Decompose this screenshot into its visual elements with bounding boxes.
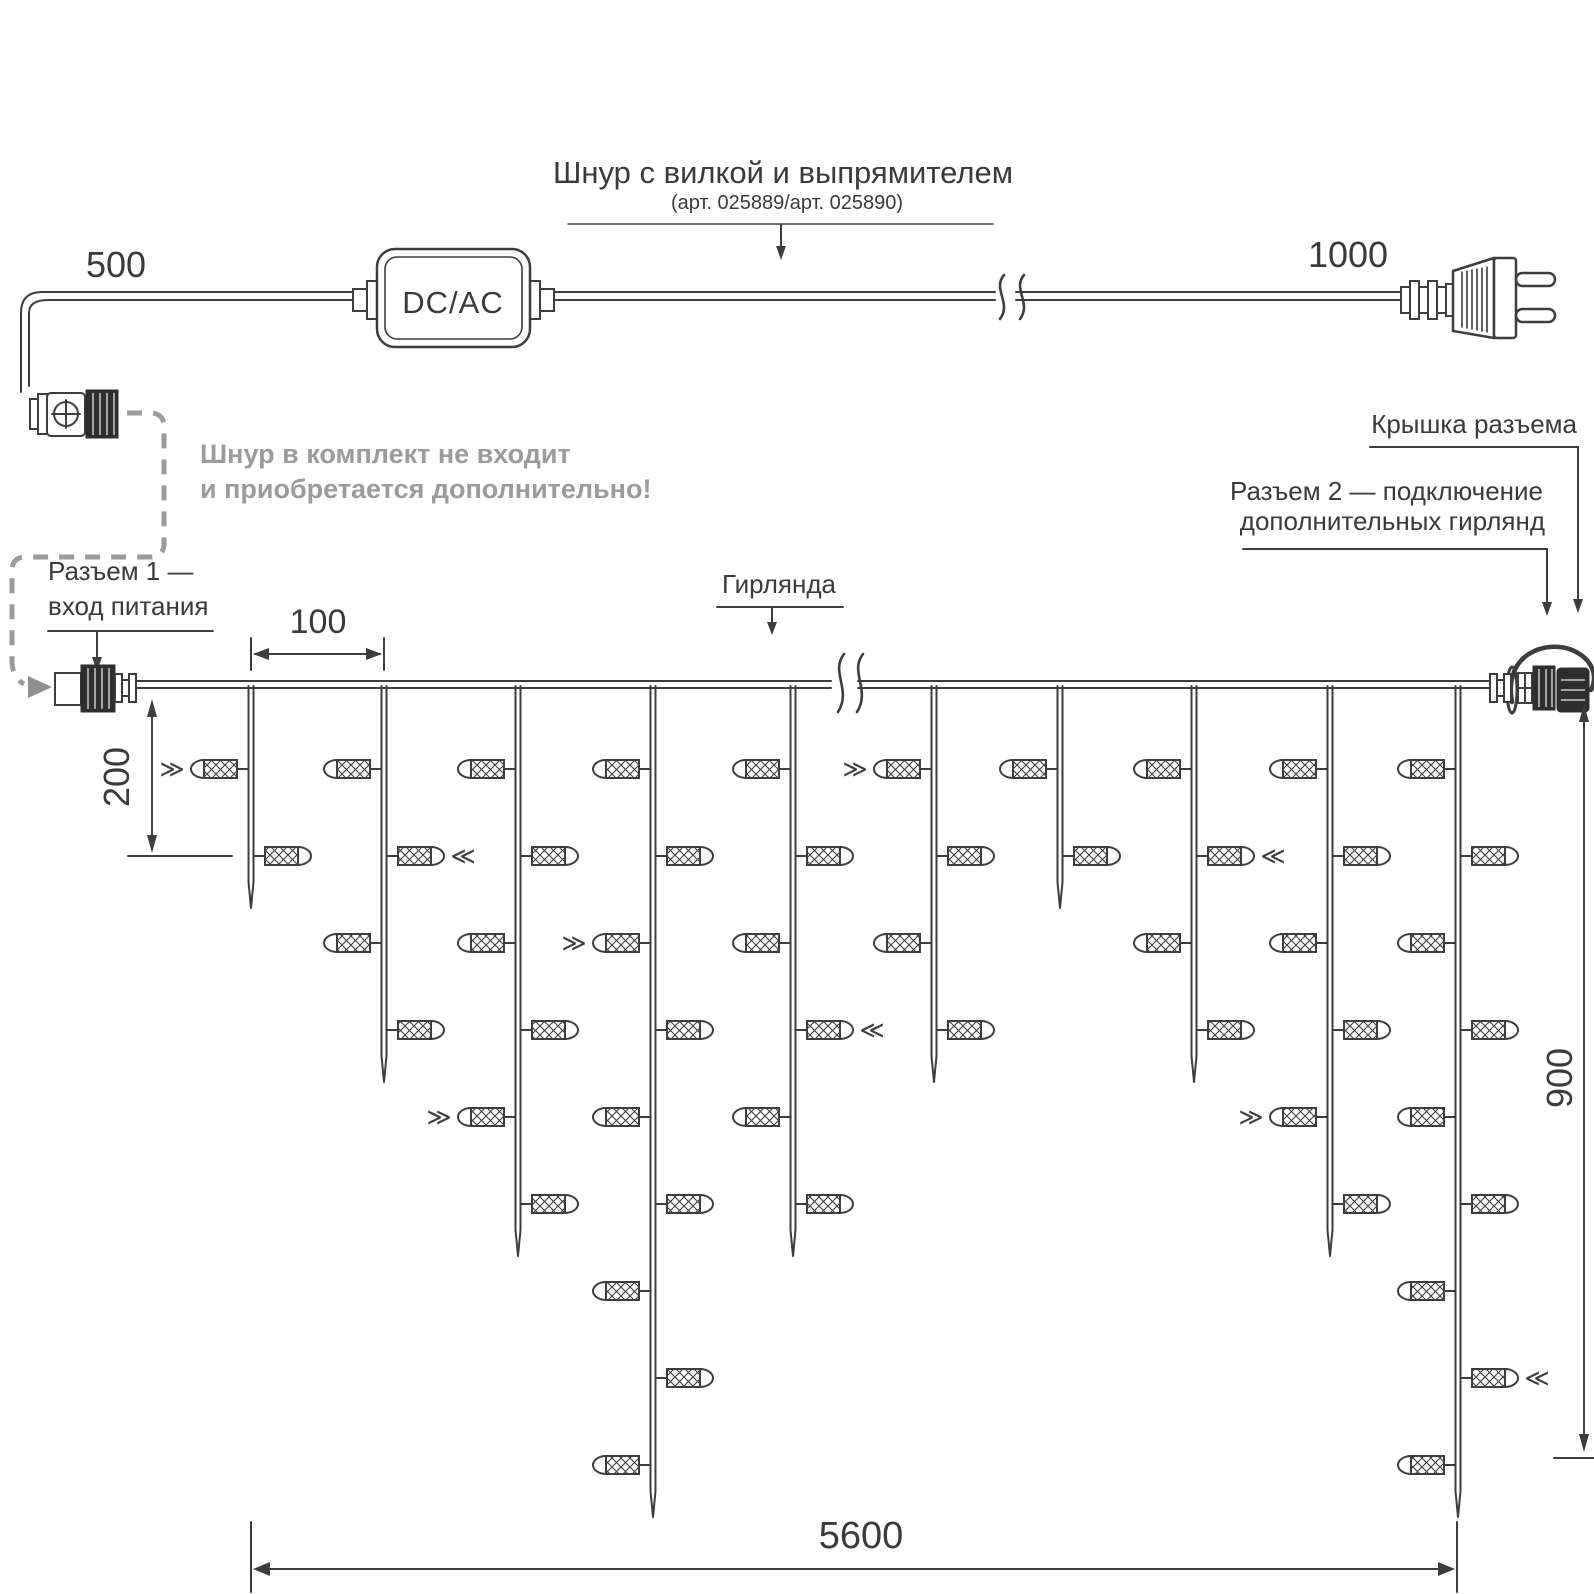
led-bulb-body — [1411, 1108, 1444, 1126]
led-bulb-body — [667, 1195, 700, 1213]
led-bulb-body — [887, 934, 920, 952]
led-bulb-dome — [1270, 760, 1283, 778]
plug-rib — [1410, 281, 1419, 319]
plug-rib — [1428, 281, 1437, 319]
connector-ring — [1504, 674, 1511, 702]
led-bulb-dome — [458, 934, 471, 952]
dim-1000-label: 1000 — [1308, 234, 1388, 275]
led-bulb-dome — [1398, 1456, 1411, 1474]
box-right-stub — [530, 281, 540, 319]
right-arrow-icon — [366, 648, 382, 660]
light-rays-icon: ≫ — [159, 755, 184, 783]
garland-main-wire — [136, 654, 1490, 712]
led-bulb-body — [606, 1108, 639, 1126]
led-bulb-dome — [1505, 1369, 1518, 1387]
led-bulb-dome — [874, 934, 887, 952]
dim-200-label: 200 — [96, 747, 137, 807]
cap-label: Крышка разъема — [1371, 409, 1577, 439]
connector2-callout: Разъем 2 — подключение дополнительных ги… — [1230, 476, 1552, 616]
led-bulb-dome — [565, 1021, 578, 1039]
plug-body — [1453, 258, 1494, 338]
led-bulb-body — [1283, 760, 1316, 778]
icicle-drop-wire — [516, 686, 521, 1256]
diagram-svg: Шнур с вилкой и выпрямителем (арт. 02588… — [0, 0, 1594, 1594]
led-bulb-body — [398, 1021, 431, 1039]
led-bulb-dome — [840, 847, 853, 865]
plug-prong — [1516, 309, 1555, 322]
led-bulb-body — [1147, 934, 1180, 952]
led-bulb-dome — [700, 1195, 713, 1213]
led-bulb-body — [1147, 760, 1180, 778]
garland-callout: Гирлянда — [717, 569, 843, 635]
connector2-line1: Разъем 2 — подключение — [1230, 476, 1543, 506]
led-bulb-dome — [1107, 847, 1120, 865]
connector1-line1: Разъем 1 — — [48, 556, 194, 586]
light-rays-icon: ≪ — [1260, 842, 1285, 870]
led-bulb-dome — [191, 760, 204, 778]
led-bulb-body — [1411, 1456, 1444, 1474]
break-squiggle-icon — [1020, 275, 1024, 319]
power-cord-right — [554, 275, 1401, 319]
led-bulb-dome — [1505, 847, 1518, 865]
led-bulb-body — [1472, 1195, 1505, 1213]
led-bulb-body — [1208, 847, 1241, 865]
icicle-drop-wire — [791, 686, 796, 1256]
led-bulb-body — [667, 1369, 700, 1387]
led-bulb-dome — [593, 934, 606, 952]
connector-ring — [1490, 674, 1497, 702]
break-squiggle-icon — [838, 654, 844, 712]
led-bulb-body — [398, 847, 431, 865]
led-bulb-dome — [874, 760, 887, 778]
led-bulb-dome — [1270, 934, 1283, 952]
connector-ring — [122, 680, 129, 696]
dim-100-label: 100 — [290, 603, 347, 641]
gray-arrow-icon — [28, 676, 52, 698]
led-bulb-dome — [593, 760, 606, 778]
icicle-drop-wire — [382, 686, 387, 1082]
light-rays-icon: ≪ — [1524, 1364, 1549, 1392]
icicle-drop-wire — [1328, 686, 1333, 1256]
led-bulb-dome — [565, 847, 578, 865]
led-bulb-dome — [840, 1195, 853, 1213]
break-squiggle-icon — [1000, 275, 1004, 319]
led-bulb-dome — [298, 847, 311, 865]
led-bulb-dome — [593, 1108, 606, 1126]
mains-plug — [1401, 258, 1555, 338]
dim-900-label: 900 — [1539, 1048, 1580, 1108]
led-bulb-body — [807, 1021, 840, 1039]
led-bulb-body — [807, 1195, 840, 1213]
optional-cord-dashed-path — [12, 413, 164, 684]
led-bulb-body — [337, 934, 370, 952]
led-bulb-body — [471, 1108, 504, 1126]
led-bulb-dome — [1377, 847, 1390, 865]
icicle-drop-wire — [249, 686, 254, 908]
led-bulb-body — [606, 760, 639, 778]
garland-label: Гирлянда — [722, 569, 836, 599]
led-bulb-dome — [700, 847, 713, 865]
dim-5600: 5600 — [251, 1515, 1457, 1592]
connector1-callout: Разъем 1 — вход питания — [48, 556, 213, 671]
led-bulb-dome — [1377, 1021, 1390, 1039]
led-bulb-dome — [1134, 934, 1147, 952]
led-bulb-dome — [1241, 847, 1254, 865]
connector1-line2: вход питания — [48, 591, 208, 621]
led-bulb-body — [1411, 934, 1444, 952]
box-right-clamp — [540, 289, 554, 311]
converter-label: DC/AC — [402, 285, 503, 320]
down-arrow-icon — [1579, 1434, 1589, 1452]
down-arrow-icon — [1542, 602, 1552, 616]
led-bulb-dome — [1398, 934, 1411, 952]
led-bulb-dome — [1134, 760, 1147, 778]
led-bulb-body — [471, 760, 504, 778]
light-rays-icon: ≪ — [450, 842, 475, 870]
power-cord-left — [21, 292, 352, 392]
led-bulb-body — [746, 934, 779, 952]
led-bulb-body — [1283, 1108, 1316, 1126]
led-bulb-body — [1411, 1282, 1444, 1300]
icicle-drop-wire — [1456, 686, 1461, 1517]
led-bulb-body — [1344, 1021, 1377, 1039]
led-bulb-body — [1208, 1021, 1241, 1039]
led-bulb-dome — [1270, 1108, 1283, 1126]
icicle-drops-layer: ≫≪≫≫≪≫≪≫≪ — [159, 686, 1549, 1517]
down-arrow-icon — [767, 622, 777, 635]
plug-prong — [1516, 273, 1555, 286]
led-bulb-body — [532, 847, 565, 865]
title-arrow-icon — [776, 246, 786, 260]
garland-wiring-diagram: Шнур с вилкой и выпрямителем (арт. 02588… — [0, 0, 1594, 1594]
box-left-stub — [367, 281, 377, 319]
up-arrow-icon — [147, 699, 157, 717]
led-bulb-body — [1344, 847, 1377, 865]
led-bulb-body — [532, 1195, 565, 1213]
left-arrow-icon — [253, 1562, 270, 1576]
led-bulb-dome — [981, 1021, 994, 1039]
light-rays-icon: ≫ — [561, 929, 586, 957]
led-bulb-body — [746, 760, 779, 778]
plug-rib — [1401, 287, 1410, 313]
led-bulb-dome — [593, 1282, 606, 1300]
plug-rib — [1419, 287, 1428, 313]
light-rays-icon: ≫ — [842, 755, 867, 783]
connector-thread-barrel — [86, 390, 118, 438]
led-bulb-body — [1344, 1195, 1377, 1213]
led-bulb-dome — [1241, 1021, 1254, 1039]
led-bulb-body — [807, 847, 840, 865]
connector-ring — [1497, 680, 1504, 696]
led-bulb-body — [337, 760, 370, 778]
garland-input-connector — [55, 665, 136, 712]
led-bulb-dome — [458, 1108, 471, 1126]
connector-thread-barrel — [81, 665, 115, 712]
note-line1: Шнур в комплект не входит — [200, 439, 571, 469]
led-bulb-body — [471, 934, 504, 952]
icicle-drop-wire — [651, 686, 656, 1517]
connector-ring — [30, 399, 38, 429]
led-bulb-body — [606, 934, 639, 952]
led-bulb-dome — [431, 847, 444, 865]
icicle-drop-wire — [932, 686, 937, 1082]
led-bulb-dome — [700, 1369, 713, 1387]
led-bulb-body — [606, 1456, 639, 1474]
led-bulb-body — [1411, 760, 1444, 778]
led-bulb-dome — [1377, 1195, 1390, 1213]
title-text: Шнур с вилкой и выпрямителем — [553, 155, 1013, 190]
connector-ring — [38, 394, 47, 434]
connector2-line2: дополнительных гирлянд — [1240, 506, 1545, 536]
led-bulb-dome — [565, 1195, 578, 1213]
led-bulb-body — [746, 1108, 779, 1126]
led-bulb-body — [1283, 934, 1316, 952]
led-bulb-dome — [981, 847, 994, 865]
dc-ac-converter: DC/AC — [353, 249, 554, 347]
led-bulb-dome — [1505, 1195, 1518, 1213]
note-line2: и приобретается дополнительно! — [200, 474, 651, 504]
dim-5600-label: 5600 — [819, 1515, 904, 1557]
led-bulb-body — [532, 1021, 565, 1039]
break-squiggle-icon — [857, 654, 863, 712]
led-bulb-body — [1472, 1021, 1505, 1039]
plug-rib — [1437, 287, 1446, 313]
connector-ring — [115, 674, 122, 702]
down-arrow-icon — [147, 835, 157, 853]
led-bulb-dome — [1000, 760, 1013, 778]
led-bulb-dome — [700, 1021, 713, 1039]
led-bulb-body — [948, 847, 981, 865]
led-bulb-body — [948, 1021, 981, 1039]
led-bulb-dome — [324, 934, 337, 952]
light-rays-icon: ≫ — [426, 1103, 451, 1131]
dim-900: 900 — [1539, 704, 1594, 1458]
led-bulb-dome — [1398, 760, 1411, 778]
icicle-drop-wire — [1058, 686, 1063, 908]
led-bulb-body — [667, 1021, 700, 1039]
connector-plug-tip — [55, 673, 81, 705]
led-bulb-body — [1013, 760, 1046, 778]
led-bulb-dome — [593, 1456, 606, 1474]
led-bulb-body — [204, 760, 237, 778]
led-bulb-body — [667, 847, 700, 865]
left-arrow-icon — [253, 648, 269, 660]
led-bulb-body — [265, 847, 298, 865]
led-bulb-dome — [733, 934, 746, 952]
led-bulb-dome — [431, 1021, 444, 1039]
box-left-clamp — [353, 289, 367, 311]
led-bulb-dome — [458, 760, 471, 778]
cord-inner-line — [29, 300, 352, 386]
led-bulb-body — [1472, 847, 1505, 865]
led-bulb-dome — [733, 760, 746, 778]
connector-ring — [129, 674, 136, 702]
title-callout: Шнур с вилкой и выпрямителем (арт. 02588… — [553, 155, 1013, 260]
garland-output-connector — [1490, 647, 1594, 713]
led-bulb-body — [887, 760, 920, 778]
led-bulb-dome — [1505, 1021, 1518, 1039]
led-bulb-body — [1472, 1369, 1505, 1387]
cord-outer-line — [21, 292, 352, 392]
plug-face — [1494, 258, 1516, 338]
led-bulb-dome — [324, 760, 337, 778]
light-rays-icon: ≫ — [1238, 1103, 1263, 1131]
cord-output-connector — [30, 390, 118, 438]
led-bulb-body — [606, 1282, 639, 1300]
subtitle-text: (арт. 025889/арт. 025890) — [671, 192, 903, 214]
dim-500-label: 500 — [86, 244, 146, 285]
icicle-drop-wire — [1192, 686, 1197, 1082]
led-bulb-dome — [733, 1108, 746, 1126]
right-arrow-icon — [1438, 1562, 1455, 1576]
led-bulb-dome — [1398, 1108, 1411, 1126]
led-bulb-dome — [1398, 1282, 1411, 1300]
down-arrow-icon — [1573, 599, 1583, 613]
led-bulb-dome — [840, 1021, 853, 1039]
led-bulb-body — [1074, 847, 1107, 865]
dim-100: 100 — [251, 603, 384, 670]
light-rays-icon: ≪ — [859, 1016, 884, 1044]
